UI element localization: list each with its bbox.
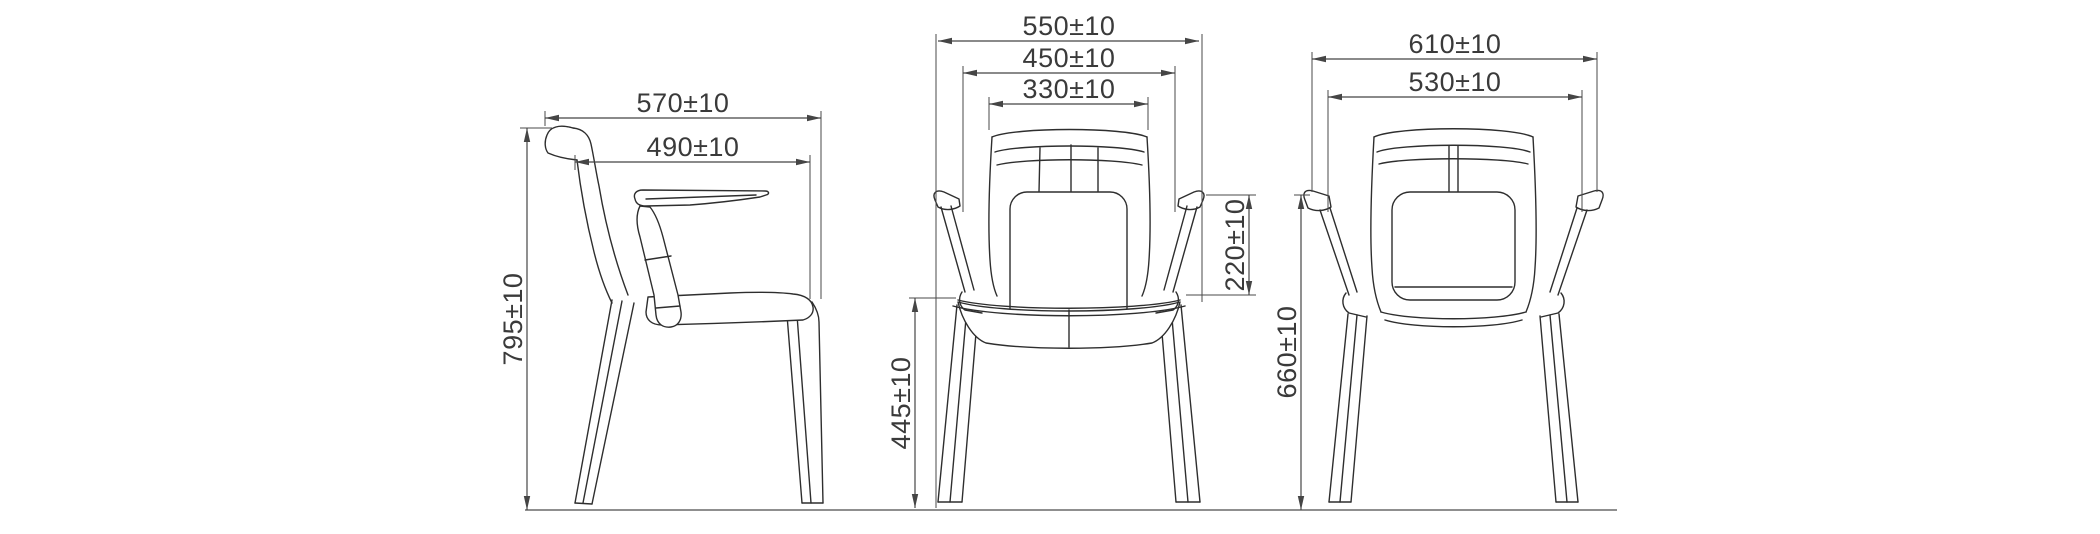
left-armrest-pad	[1304, 190, 1331, 210]
right-armrest-strut-b	[1164, 206, 1187, 290]
armrest-strut	[637, 206, 681, 327]
dim-label-330: 330±10	[1023, 74, 1116, 104]
backrest-seam-left	[1039, 148, 1040, 192]
right-armrest-bracket	[1541, 293, 1564, 317]
dim-front-backrest-top-width-330: 330±10	[989, 74, 1148, 130]
right-leg-mid	[1550, 315, 1567, 502]
rear-leg-foot	[575, 503, 592, 504]
rear-leg-outer	[575, 300, 612, 503]
dim-side-overall-height-795: 795±10	[498, 128, 552, 510]
front-leg-outer	[812, 302, 823, 503]
dim-label-610: 610±10	[1409, 29, 1502, 59]
dim-back-width-530: 530±10	[1328, 67, 1582, 212]
backrest-inner-arc-2	[997, 160, 1142, 165]
backrest-left-edge	[989, 137, 997, 296]
backrest-inner-arc	[995, 146, 1144, 152]
backrest-right-edge	[1142, 137, 1150, 296]
seat-bottom-arc-2	[1385, 320, 1522, 327]
backrest-top-arc	[1374, 129, 1533, 137]
left-leg-outer	[938, 305, 957, 502]
dim-label-220: 220±10	[1220, 199, 1250, 292]
right-armrest-pad	[1576, 190, 1603, 210]
dim-side-seat-depth-490: 490±10	[575, 132, 810, 299]
backrest-inner-arc-2	[1379, 159, 1528, 164]
lumbar-panel	[1010, 192, 1127, 325]
rear-leg-mid	[583, 301, 622, 503]
dim-front-seat-width-450: 450±10	[963, 43, 1175, 212]
dim-label-530: 530±10	[1409, 67, 1502, 97]
left-leg-outer	[1329, 314, 1348, 502]
left-armrest-strut-b	[951, 206, 974, 290]
backrest-top-arc	[992, 130, 1147, 138]
backrest-inner-arc	[1377, 145, 1530, 152]
dim-label-490: 490±10	[647, 132, 740, 162]
drawing-canvas: 570±10 490±10 795±10 550±10 450±10 330±1…	[0, 0, 2100, 534]
dim-back-arm-height-660: 660±10	[1272, 195, 1310, 510]
left-armrest-pad	[934, 191, 960, 210]
backrest-top-hook	[545, 126, 577, 160]
right-armrest-strut-a	[1173, 207, 1197, 292]
back-view-chair	[1304, 129, 1603, 502]
dim-label-445: 445±10	[886, 357, 916, 450]
backrest-rear-edge	[577, 160, 612, 303]
back-panel	[1392, 192, 1515, 300]
left-leg-mid	[1340, 315, 1357, 502]
right-leg-inner	[1540, 316, 1556, 502]
rear-leg-inner	[592, 303, 634, 504]
right-leg-outer	[1181, 305, 1200, 502]
right-leg-outer	[1559, 314, 1578, 502]
dim-front-seat-height-445: 445±10	[886, 298, 956, 508]
dim-back-overall-width-610: 610±10	[1312, 29, 1597, 192]
left-leg-inner	[1351, 316, 1367, 502]
seat-bottom-arc	[1381, 312, 1526, 319]
right-armrest-pad	[1178, 191, 1204, 210]
dim-label-570: 570±10	[637, 88, 730, 118]
left-armrest-bracket	[1343, 293, 1366, 317]
front-view-chair	[934, 130, 1204, 503]
dim-label-795: 795±10	[498, 273, 528, 366]
backrest-front-edge	[573, 128, 628, 295]
side-view-chair	[545, 126, 823, 504]
dim-label-550: 550±10	[1023, 11, 1116, 41]
dim-label-450: 450±10	[1023, 43, 1116, 73]
left-armrest-strut-a	[941, 207, 965, 292]
chair-dimension-drawing: 570±10 490±10 795±10 550±10 450±10 330±1…	[0, 0, 2100, 534]
dim-label-660: 660±10	[1272, 306, 1302, 399]
